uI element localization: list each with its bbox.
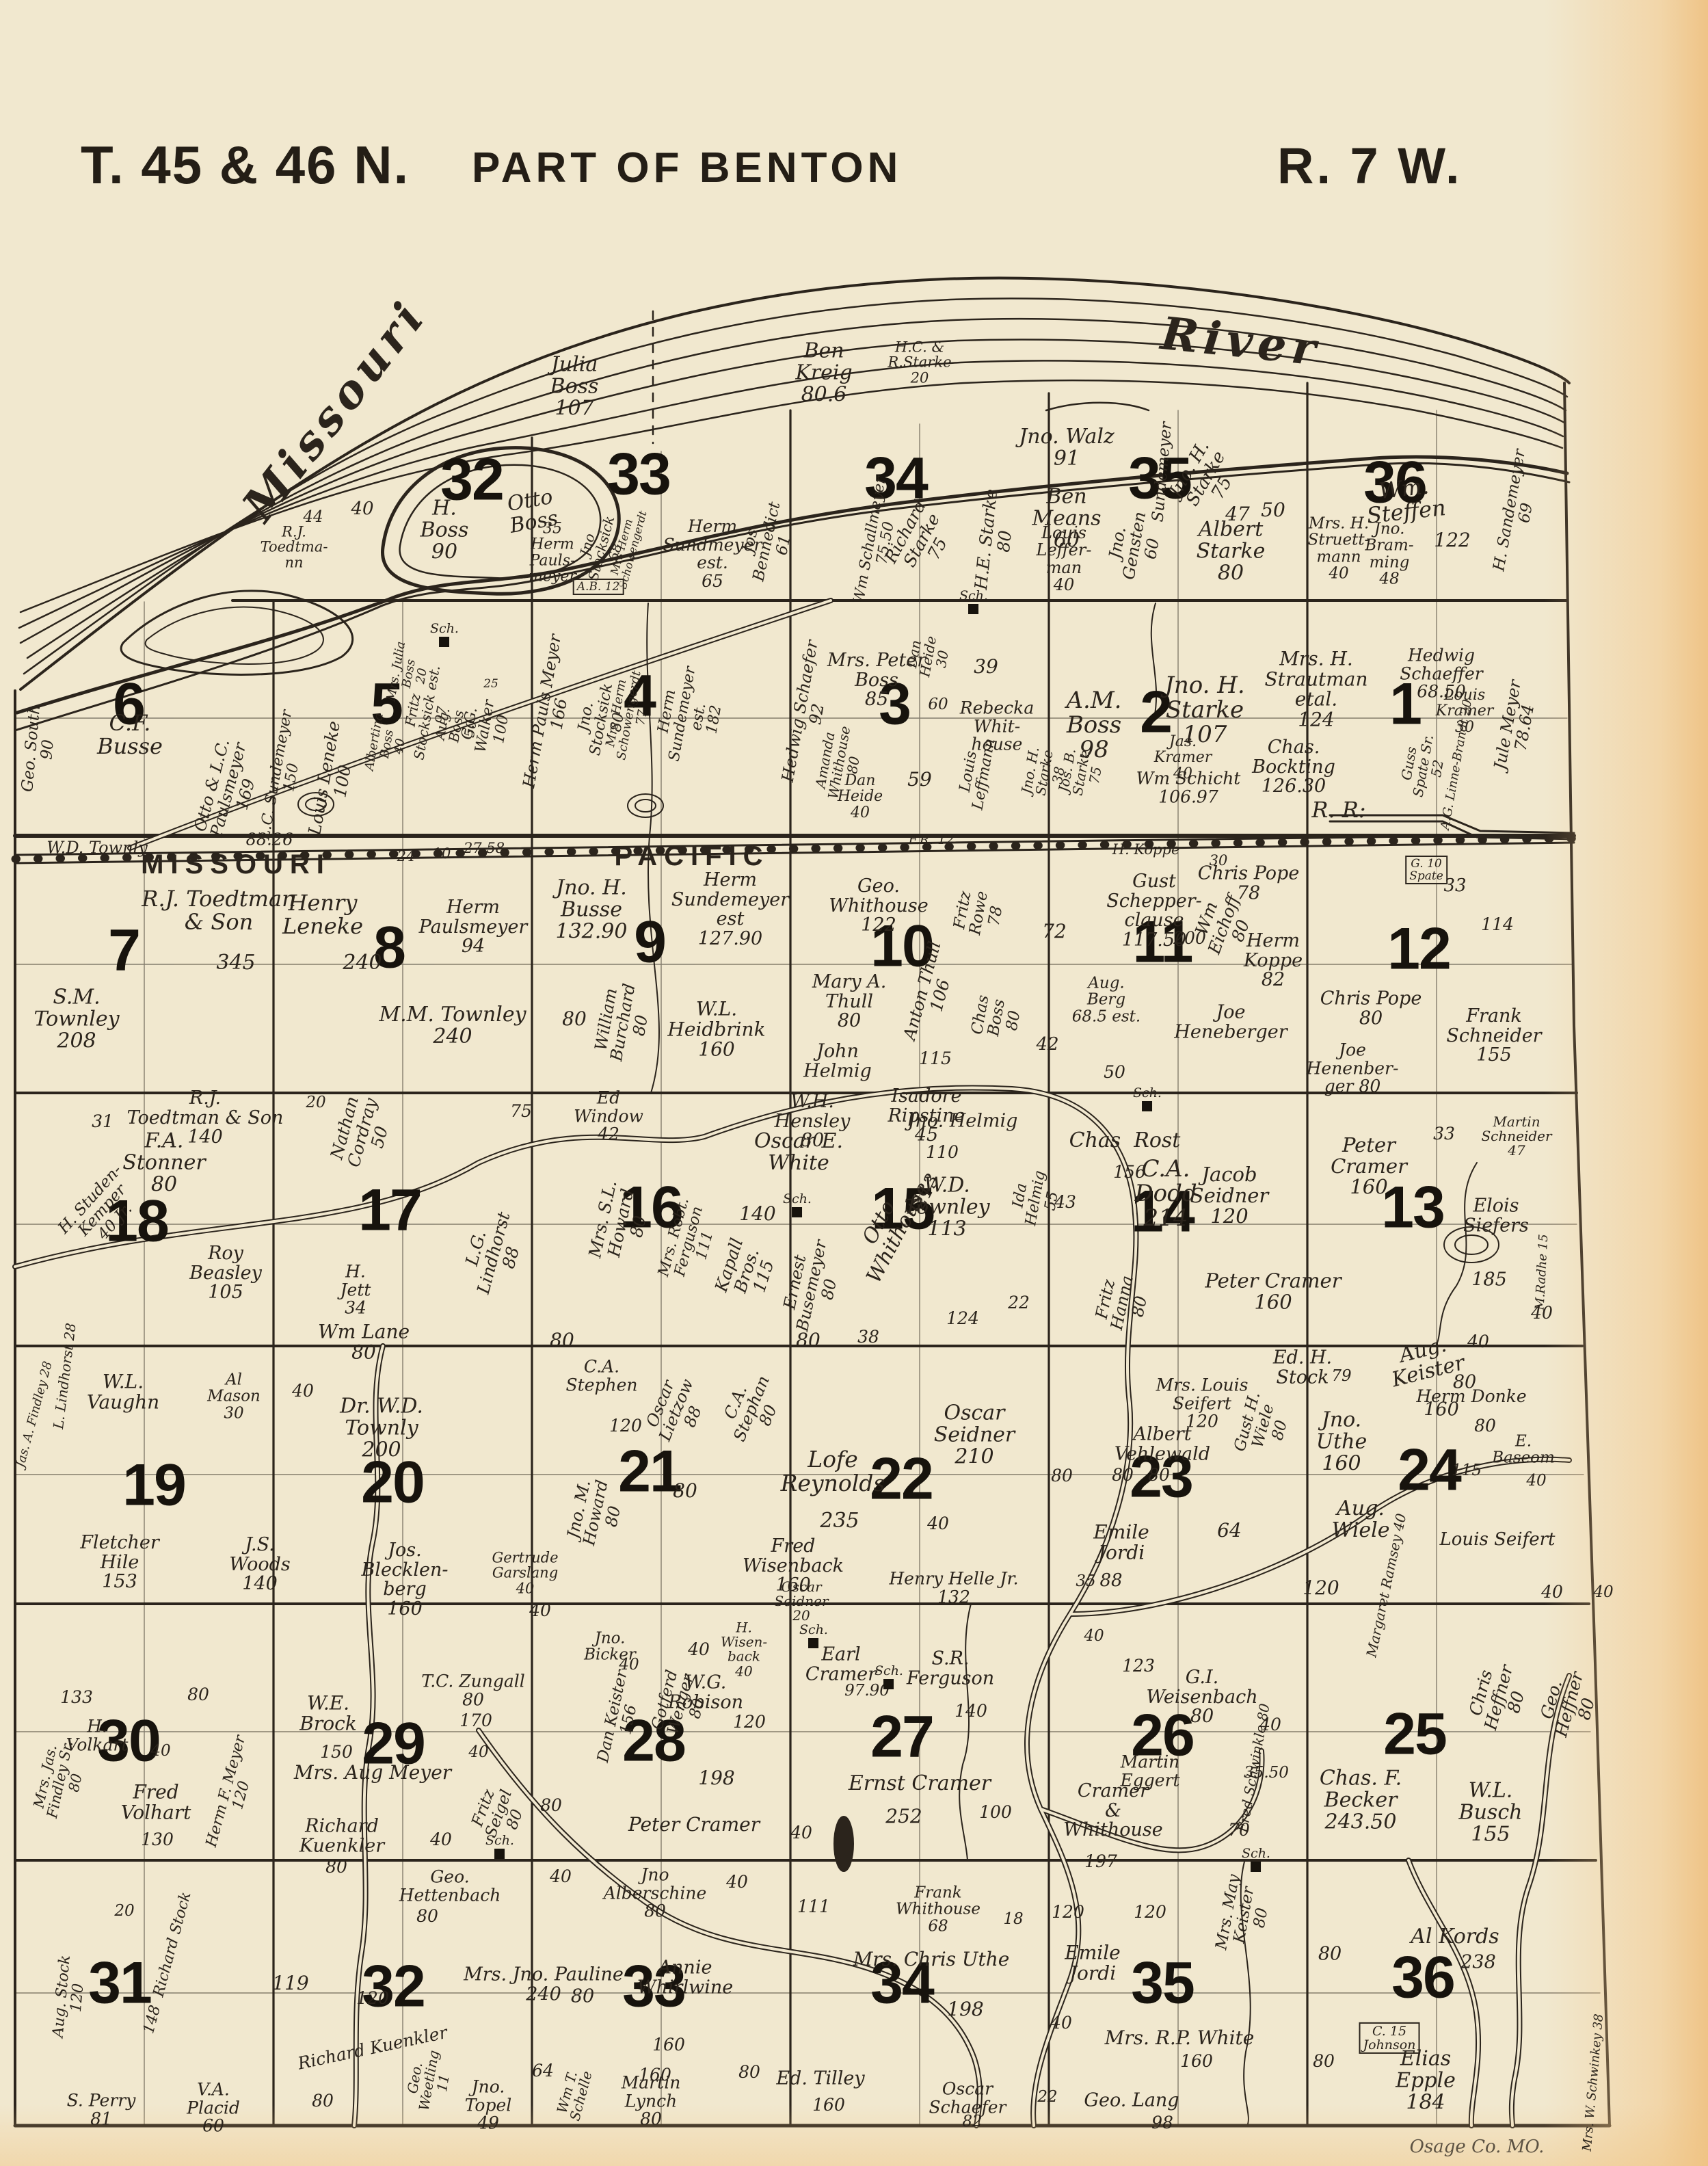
- parcel-label: 70: [1228, 1821, 1250, 1840]
- parcel-label: 120: [1303, 1578, 1339, 1598]
- section-number: 35: [1131, 1950, 1194, 2018]
- parcel-label: 38: [857, 1328, 879, 1347]
- school-marker: Sch.: [430, 622, 459, 647]
- parcel-label: Fletcher Hile 153: [80, 1533, 159, 1592]
- section-number: 27: [870, 1704, 933, 1771]
- parcel-label: H. Wisen- back 40: [721, 1621, 767, 1679]
- parcel-label: 197: [1084, 1853, 1117, 1871]
- parcel-label: 80: [1148, 1466, 1170, 1485]
- parcel-label: Aug. Wiele: [1331, 1498, 1389, 1542]
- parcel-label: Herm Sundemeyer est 127.90: [671, 871, 789, 949]
- parcel-label: 100: [979, 1804, 1012, 1822]
- parcel-label: 75: [510, 1102, 532, 1121]
- school-marker: Sch.: [1242, 1847, 1270, 1872]
- parcel-label: 98: [1151, 2114, 1173, 2132]
- parcel-label: 50: [1104, 1064, 1125, 1082]
- school-marker: Sch.: [959, 590, 988, 614]
- parcel-label: Annie Whirlwine: [637, 1958, 733, 1997]
- parcel-label: 18: [1003, 1911, 1023, 1927]
- parcel-label: Fritz Hanna 80: [1091, 1271, 1153, 1336]
- parcel-label: Elois Siefers: [1463, 1196, 1529, 1235]
- parcel-label: H. Koppe: [1112, 842, 1180, 857]
- parcel-label: 40: [688, 1641, 710, 1659]
- parcel-label: Chris Pope 80: [1320, 989, 1422, 1028]
- parcel-label: 33: [1433, 1125, 1455, 1144]
- parcel-label: 80: [738, 2063, 760, 2082]
- parcel-label: Gertrude Garslang 40: [492, 1550, 558, 1596]
- parcel-label: E. Baseom: [1492, 1434, 1555, 1467]
- parcel-label: Louis Leffer- man 40: [1037, 525, 1092, 594]
- parcel-label: 40: [351, 500, 373, 519]
- parcel-label: Jacob Seidner 120: [1190, 1164, 1269, 1227]
- parcel-label: W.E. Brock: [299, 1693, 356, 1733]
- section-number: 31: [88, 1950, 151, 2018]
- parcel-label: 50: [1261, 500, 1285, 520]
- parcel-label: 82: [962, 2113, 982, 2130]
- parcel-label: Peter Cramer: [628, 1814, 760, 1835]
- parcel-label: 79: [1331, 1368, 1351, 1384]
- parcel-label: 122: [1434, 530, 1470, 551]
- parcel-label: 40: [430, 1831, 452, 1849]
- parcel-label: 252: [885, 1806, 922, 1827]
- parcel-label: 80: [540, 1797, 562, 1815]
- school-marker: Sch.: [799, 1624, 828, 1648]
- parcel-label: Mrs. Jno. Pauline 240: [464, 1965, 624, 2004]
- parcel-label: 80: [1051, 1467, 1073, 1485]
- parcel-label: Ed Window 42: [574, 1089, 643, 1144]
- parcel-label: 238: [1460, 1953, 1496, 1973]
- township-title: T. 45 & 46 N.: [81, 134, 410, 196]
- parcel-label: Albert Starke 80: [1197, 518, 1266, 583]
- parcel-label: 64: [1217, 1520, 1242, 1541]
- parcel-label: Chris Pope 78: [1198, 864, 1300, 903]
- parcel-label: 40: [1593, 1584, 1613, 1600]
- parcel-label: Mrs. Louis Seifert 120: [1156, 1376, 1249, 1431]
- parcel-label: 80: [550, 1330, 574, 1351]
- parcel-label: 80: [1318, 1945, 1342, 1965]
- parcel-label: G.I. Weisenbach 80: [1146, 1668, 1257, 1727]
- parcel-label: T.C. Zungall 80: [421, 1673, 525, 1709]
- parcel-label: 20: [114, 1903, 134, 1919]
- parcel-label: 40: [150, 1743, 170, 1759]
- parcel-label: Jno. Uthe 160: [1316, 1409, 1367, 1474]
- parcel-label: Jno. H. Busse 132.90: [556, 877, 628, 942]
- parcel-label: Wm Lane 80: [318, 1321, 410, 1362]
- parcel-label: Oscar Seidner 20: [774, 1580, 828, 1624]
- parcel-label: 80: [1313, 2052, 1335, 2071]
- parcel-label: 20: [306, 1094, 325, 1111]
- parcel-label: Mary A. Thull 80: [812, 973, 887, 1031]
- parcel-label: Lofe Reynolds: [781, 1448, 885, 1496]
- parcel-label: Geo. Lang: [1084, 2091, 1179, 2111]
- parcel-label: W.D. Townly: [46, 839, 148, 856]
- parcel-label: Joe Henenber- ger 80: [1307, 1041, 1399, 1096]
- parcel-label: H. Jett 34: [341, 1263, 371, 1317]
- parcel-label: 198: [947, 1999, 983, 2020]
- parcel-label: 120: [609, 1417, 642, 1436]
- map-title: PART OF BENTON: [472, 144, 902, 192]
- parcel-label: Herm Paulsmeyer 94: [419, 898, 528, 957]
- parcel-label: Albert Vehlewald: [1115, 1425, 1210, 1464]
- parcel-label: Henry Helle Jr. 132: [889, 1570, 1018, 1607]
- parcel-label: Frank Whithouse 68: [896, 1884, 980, 1934]
- parcel-label: 88: [1099, 1572, 1122, 1591]
- section-number: 17: [358, 1177, 421, 1245]
- school-marker: Sch.: [1133, 1087, 1162, 1111]
- parcel-label: Al Kords: [1411, 1926, 1499, 1948]
- parcel-label: Oscar Schaefer: [929, 2081, 1006, 2117]
- plat-map-page: T. 45 & 46 N. PART OF BENTON R. 7 W. Mis…: [0, 0, 1708, 2166]
- parcel-label: Mrs. H. Struett- mann 40: [1308, 515, 1370, 582]
- parcel-label: Peter Cramer 160: [1205, 1270, 1341, 1312]
- parcel-label: G. 10 Spate: [1405, 856, 1447, 884]
- school-marker: Sch.: [485, 1834, 514, 1859]
- parcel-label: Mrs. R.P. White: [1105, 2028, 1255, 2048]
- parcel-label: 33: [1443, 877, 1466, 896]
- parcel-label: Geo. Hettenbach: [399, 1868, 501, 1905]
- parcel-label: Fred Volhart: [121, 1782, 191, 1822]
- parcel-label: Oscar E. White: [754, 1131, 843, 1174]
- parcel-label: H. Boss 90: [421, 497, 469, 562]
- parcel-label: 40: [550, 1868, 572, 1886]
- parcel-label: 140: [955, 1702, 987, 1721]
- parcel-label: 80: [673, 1481, 697, 1501]
- parcel-label: 120: [733, 1713, 766, 1732]
- parcel-label: 119: [272, 1973, 308, 1994]
- parcel-label: V.A. Placid 60: [187, 2081, 240, 2135]
- parcel-label: 64: [532, 2062, 554, 2081]
- parcel-label: Jno. Helmig: [908, 1112, 1018, 1132]
- parcel-label: S.R. Ferguson: [907, 1649, 994, 1688]
- parcel-label: Martin Lynch 80: [622, 2074, 681, 2128]
- parcel-label: R.J. Toedtman & Son: [142, 888, 295, 934]
- parcel-label: Jno. Topel 49: [465, 2078, 512, 2132]
- parcel-label: 40: [529, 1602, 551, 1620]
- parcel-label: Martin Schneider 47: [1481, 1115, 1551, 1159]
- parcel-label: 111: [797, 1898, 830, 1916]
- map-linework: [0, 0, 1708, 2166]
- parcel-label: Chas. F. Becker 243.50: [1320, 1767, 1402, 1832]
- parcel-label: 25: [483, 678, 498, 690]
- parcel-label: 240: [343, 952, 382, 974]
- parcel-label: 114: [1481, 916, 1514, 934]
- parcel-label: A.B. 12: [573, 579, 624, 595]
- parcel-label: Ed. H. Stock: [1273, 1348, 1332, 1387]
- parcel-label: J.S. Woods 140: [229, 1535, 291, 1594]
- section-number: 33: [607, 441, 670, 509]
- parcel-label: Louis Seifert: [1440, 1531, 1556, 1550]
- section-number: 7: [108, 917, 139, 985]
- parcel-label: G.G. Walker 100: [457, 696, 513, 757]
- parcel-label: W.L. Vaughn: [87, 1371, 159, 1412]
- parcel-label: Ben Kreig 80.6: [795, 340, 852, 405]
- parcel-label: 42: [1036, 1035, 1058, 1055]
- parcel-label: 40: [1467, 1333, 1489, 1351]
- parcel-label: F.R. 12: [909, 833, 955, 847]
- parcel-label: Mrs. Aug Meyer: [294, 1762, 451, 1783]
- parcel-label: 80: [1474, 1417, 1496, 1436]
- parcel-label: 40: [468, 1744, 488, 1760]
- parcel-label: 44: [303, 509, 323, 525]
- parcel-label: 72: [1042, 921, 1067, 942]
- range-title: R. 7 W.: [1277, 137, 1463, 195]
- parcel-label: 80: [312, 2092, 334, 2111]
- parcel-label: 40: [1541, 1583, 1563, 1602]
- parcel-label: Julia Boss 107: [550, 354, 599, 419]
- parcel-label: John Helmig: [803, 1042, 872, 1081]
- parcel-label: 22: [1037, 2089, 1057, 2105]
- parcel-label: 124: [946, 1310, 979, 1328]
- parcel-label: 185: [1471, 1271, 1507, 1291]
- parcel-label: R.J. Toedtma- nn: [261, 525, 328, 570]
- section-number: 21: [618, 1438, 681, 1506]
- parcel-label: 150: [320, 1743, 353, 1762]
- parcel-label: 40: [292, 1382, 314, 1401]
- section-number: 36: [1391, 1944, 1454, 2012]
- parcel-label: 115: [919, 1050, 952, 1068]
- parcel-label: 35: [1076, 1573, 1095, 1589]
- parcel-label: Dr. W.D. Townly 200: [340, 1395, 423, 1460]
- parcel-label: 60: [928, 696, 948, 713]
- parcel-label: W.L. Busch 155: [1459, 1780, 1523, 1845]
- parcel-label: 88.26: [246, 831, 293, 848]
- parcel-label: Emile Jordi: [1093, 1522, 1149, 1562]
- parcel-label: 160: [652, 2036, 685, 2055]
- parcel-label: 40: [726, 1873, 748, 1892]
- parcel-label: Chas Rost: [1069, 1130, 1181, 1152]
- parcel-label: Herm Koppe 82: [1244, 932, 1303, 990]
- parcel-label: Chas. Bockting 126.30: [1252, 738, 1335, 797]
- parcel-label: 156: [1113, 1163, 1146, 1182]
- parcel-label: 80: [325, 1858, 347, 1877]
- parcel-label: S. Perry 81: [67, 2092, 136, 2128]
- parcel-label: Geo. Whithouse 122: [829, 877, 929, 936]
- parcel-label: 59: [907, 769, 932, 790]
- parcel-label: Oscar Seidner 210: [934, 1402, 1015, 1467]
- parcel-label: Henry Leneke: [282, 892, 363, 938]
- parcel-label: 40: [1526, 1472, 1546, 1489]
- parcel-label: 10: [433, 846, 451, 861]
- parcel-label: Frank Schneider 155: [1446, 1007, 1541, 1066]
- county-footer: Osage Co. MO.: [1410, 2138, 1545, 2157]
- parcel-label: 22: [1008, 1294, 1030, 1312]
- parcel-label: Mrs. H. Strautman etal. 124: [1264, 649, 1367, 730]
- parcel-label: 80: [187, 1686, 209, 1704]
- parcel-label: 160: [1180, 2052, 1213, 2071]
- parcel-label: 80: [562, 1009, 587, 1029]
- parcel-label: 120: [356, 1990, 389, 2008]
- section-number: 32: [362, 1953, 425, 2021]
- parcel-label: Dan Heide 40: [838, 773, 883, 821]
- parcel-label: 345: [216, 952, 255, 974]
- parcel-label: 110: [926, 1144, 959, 1162]
- parcel-label: PACIFIC: [614, 842, 769, 871]
- parcel-label: 120: [1052, 1903, 1084, 1922]
- section-number: 19: [122, 1452, 185, 1520]
- parcel-label: Jno. Walz 91: [1019, 426, 1114, 470]
- parcel-label: 40: [1531, 1304, 1553, 1323]
- parcel-label: Cramer & Whithouse: [1063, 1782, 1163, 1840]
- parcel-label: R. R:: [1311, 799, 1365, 822]
- parcel-label: Jno Alberschine 80: [604, 1866, 707, 1920]
- parcel-label: Chas Boss 80: [969, 994, 1025, 1042]
- parcel-label: Rebecka Whit- house: [960, 699, 1034, 754]
- parcel-label: Jos. Blecklen- berg 160: [361, 1541, 448, 1619]
- parcel-label: W.L. Heidbrink 160: [667, 999, 765, 1059]
- parcel-label: 120: [1134, 1903, 1166, 1922]
- section-number: 9: [634, 909, 665, 977]
- parcel-label: Al Mason 30: [207, 1371, 261, 1421]
- parcel-label: 43: [1054, 1193, 1076, 1212]
- parcel-label: 40: [1084, 1628, 1104, 1644]
- parcel-label: 39: [974, 657, 998, 677]
- parcel-label: 24: [397, 849, 416, 864]
- parcel-label: C.A. Stephen: [566, 1358, 638, 1395]
- parcel-label: MISSOURI: [141, 850, 331, 879]
- parcel-label: Jos. B. Starke 75: [1056, 746, 1107, 799]
- parcel-label: Elias Epple 184: [1396, 2048, 1456, 2113]
- parcel-label: 40: [1050, 2014, 1072, 2033]
- parcel-label: 170: [459, 1712, 492, 1730]
- parcel-label: 27.58: [464, 841, 505, 856]
- parcel-label: Dan Heide 30: [903, 633, 953, 681]
- parcel-label: Ed. Tilley: [776, 2070, 864, 2089]
- parcel-label: 140: [739, 1204, 775, 1224]
- parcel-label: 80: [796, 1330, 820, 1351]
- parcel-label: 160: [812, 2096, 845, 2115]
- section-number: 25: [1383, 1701, 1446, 1769]
- parcel-label: Wm Schicht 106.97: [1136, 770, 1241, 806]
- parcel-label: Emile Jordi: [1065, 1942, 1120, 1983]
- parcel-label: Jno. Bram- ming 48: [1365, 520, 1413, 587]
- parcel-label: 198: [698, 1768, 734, 1788]
- parcel-label: Joe Heneberger: [1174, 1003, 1287, 1042]
- section-number: 12: [1387, 916, 1450, 983]
- parcel-label: 80: [1112, 1466, 1134, 1485]
- parcel-label: H.C. & R.Starke 20: [888, 340, 951, 386]
- parcel-label: Aug. Berg 68.5 est.: [1072, 975, 1141, 1025]
- parcel-label: 40: [790, 1824, 812, 1843]
- parcel-label: 35 Herm Pauls- meyer: [529, 520, 576, 584]
- parcel-label: 130: [141, 1831, 174, 1849]
- parcel-label: Ernst Cramer: [849, 1773, 991, 1795]
- parcel-label: Roy Beasley 105: [189, 1244, 262, 1303]
- parcel-label: Richard Kuenkler: [299, 1817, 384, 1855]
- parcel-label: C.F. Busse: [97, 712, 163, 758]
- parcel-label: 133: [60, 1689, 93, 1707]
- parcel-label: Peter Cramer 160: [1331, 1135, 1407, 1198]
- school-marker: Sch.: [783, 1193, 812, 1217]
- parcel-label: 80: [416, 1907, 438, 1926]
- parcel-label: Mrs. Chris Uthe: [853, 1949, 1010, 1970]
- parcel-label: 31: [92, 1113, 114, 1131]
- parcel-label: Earl Cramer: [805, 1645, 877, 1684]
- parcel-label: M.M. Townley 240: [379, 1004, 526, 1048]
- parcel-label: S.M. Townley 208: [34, 986, 119, 1051]
- parcel-label: Fritz Rowe 78: [950, 887, 1007, 939]
- parcel-label: W.G. Robison: [668, 1673, 743, 1712]
- school-marker: Sch.: [875, 1665, 903, 1689]
- parcel-label: 115: [1452, 1462, 1482, 1479]
- parcel-label: 40: [927, 1515, 949, 1533]
- parcel-label: 80: [1453, 1373, 1476, 1393]
- parcel-label: 235: [820, 1510, 859, 1532]
